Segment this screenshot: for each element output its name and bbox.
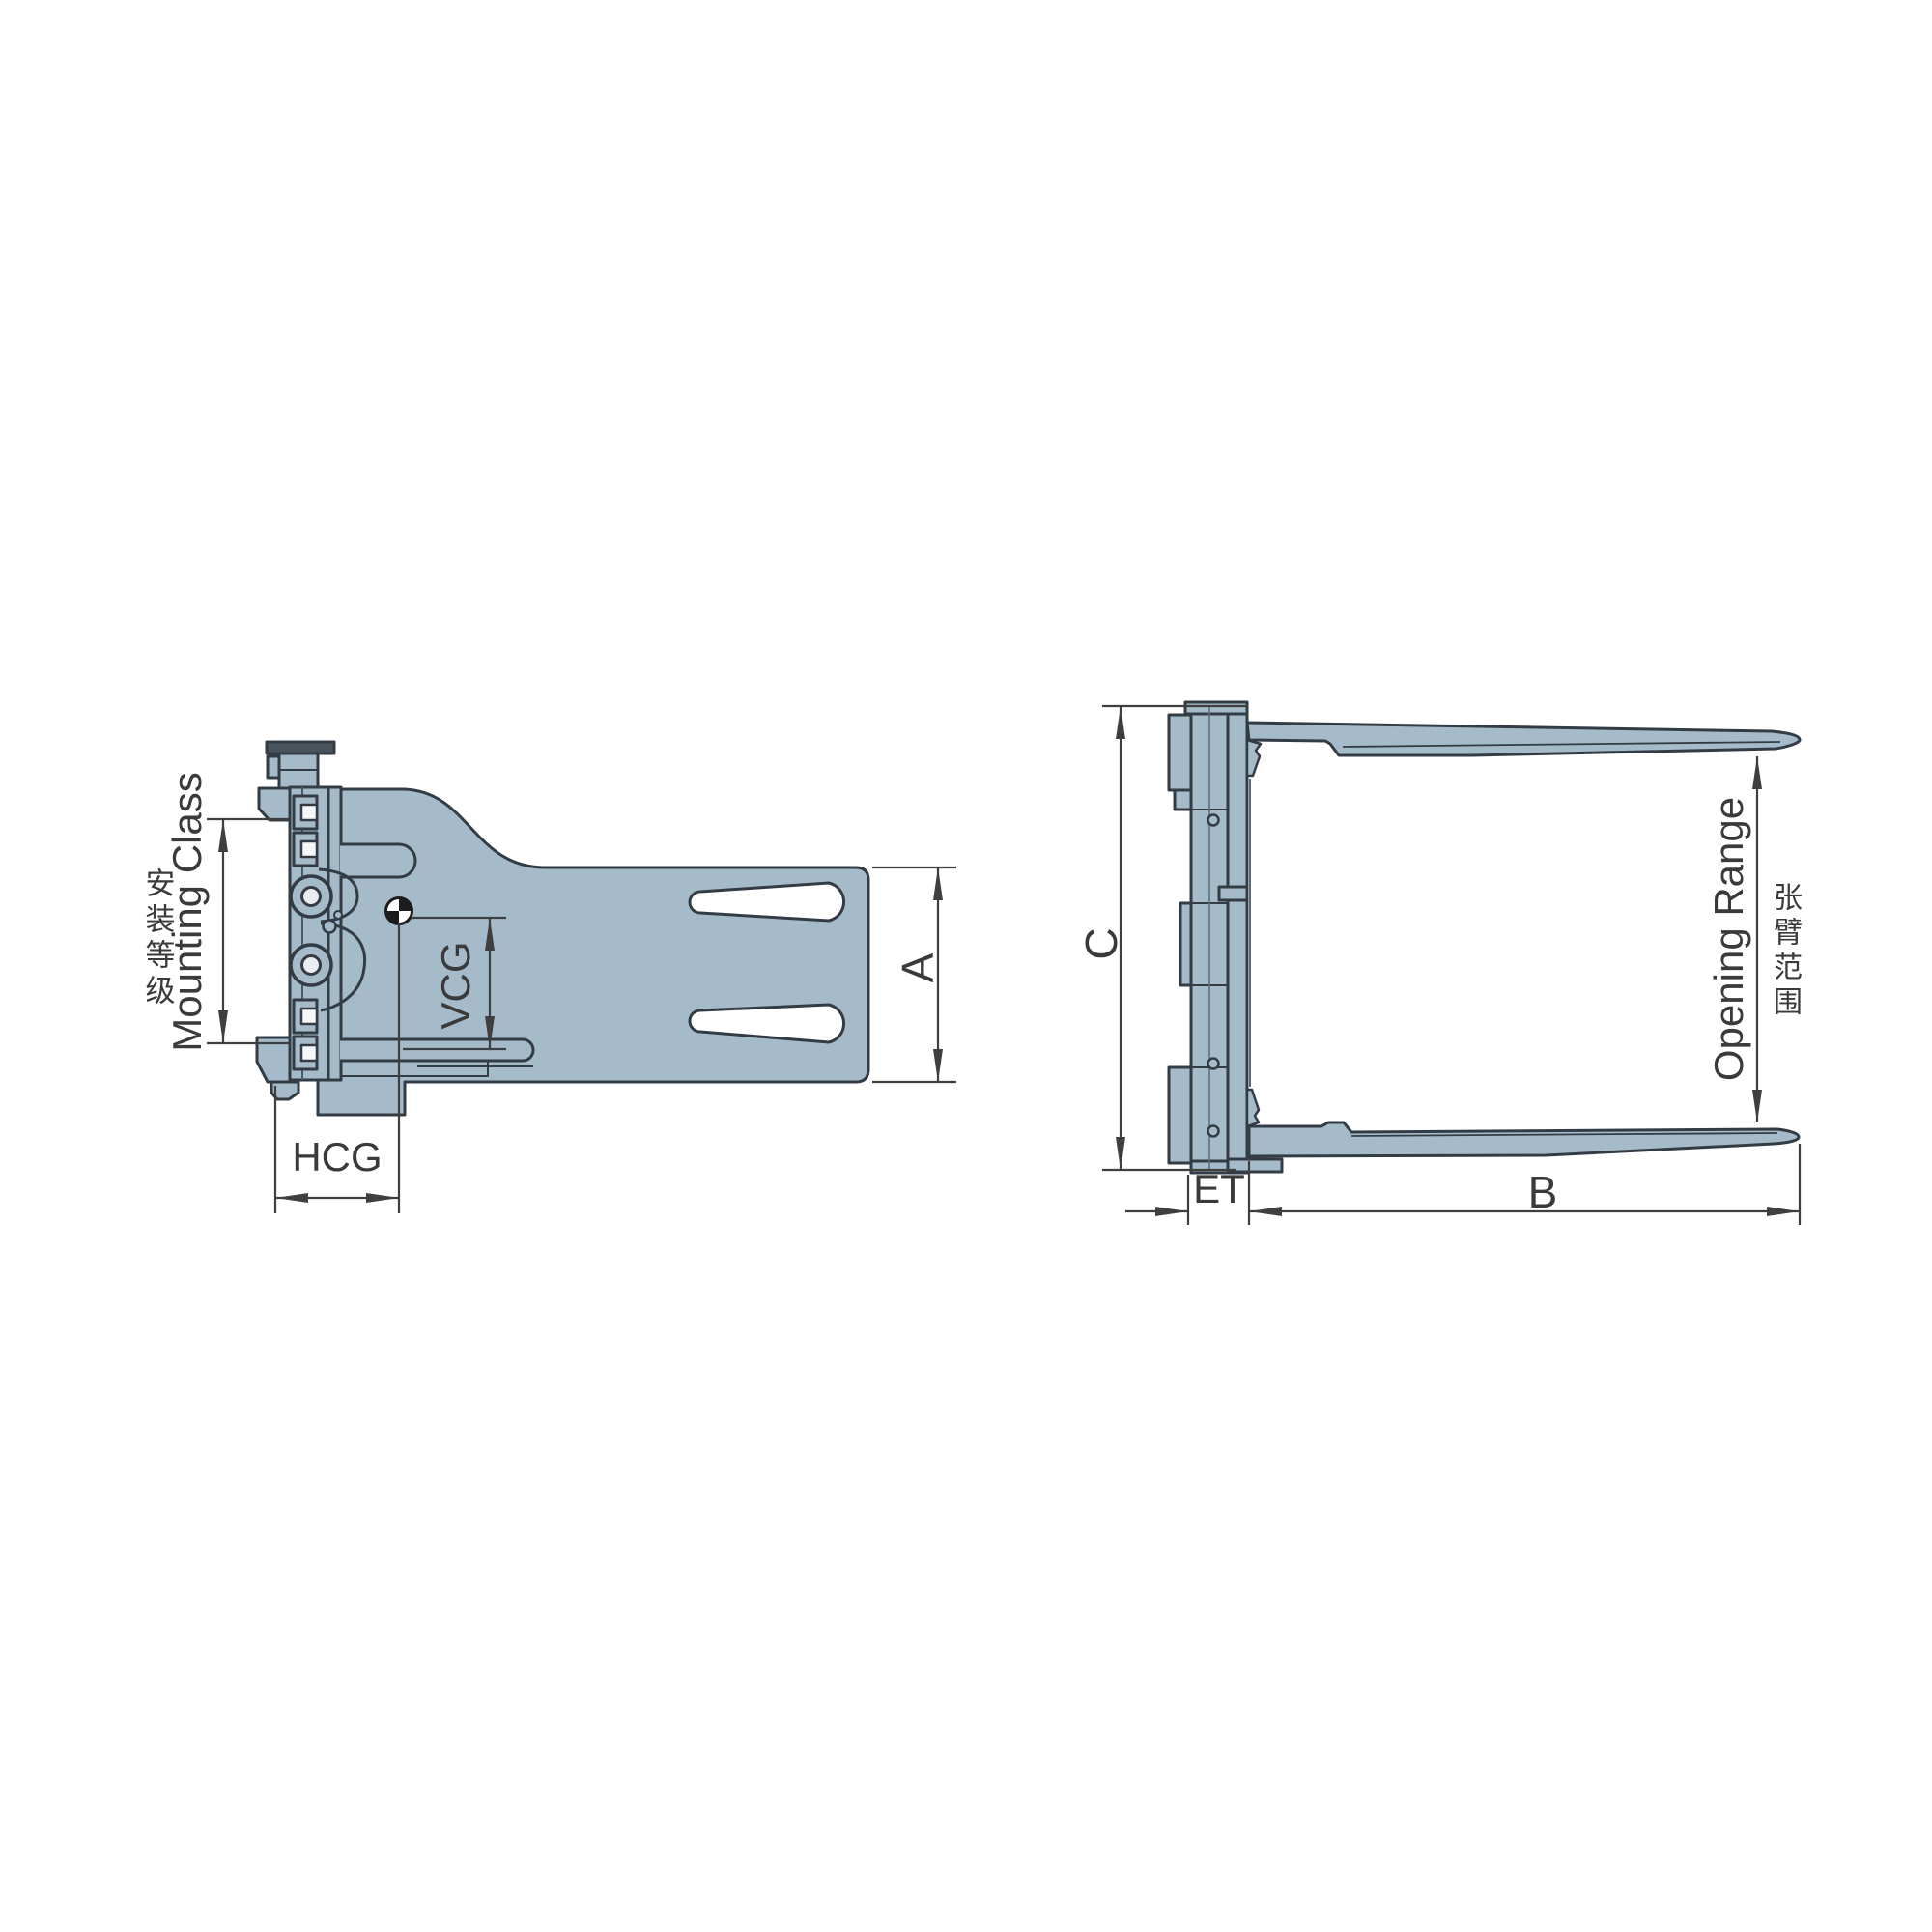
opening-range-cn-label: 张臂范围: [1770, 882, 1799, 1021]
front-strip: [1228, 712, 1247, 1173]
side-view: [257, 742, 868, 1115]
hanger-cap: [267, 742, 334, 753]
top-arm-gusset: [1247, 740, 1261, 776]
technical-drawing-page: 安装等级 Mounting Class VCG HCG A C Opening …: [0, 0, 1932, 1932]
a-label: A: [895, 953, 940, 983]
clamp-drawing-svg: [0, 0, 1932, 1932]
bracket-tab-round: [340, 844, 415, 877]
front-strip-step: [1219, 887, 1247, 900]
front-block-lower: [1169, 1067, 1191, 1163]
mounting-class-label: Mounting Class: [167, 772, 208, 1051]
center-of-gravity-icon: [386, 898, 412, 924]
vcg-label: VCG: [436, 941, 476, 1029]
bottom-arm: [1249, 1122, 1799, 1156]
et-label: ET: [1193, 1169, 1245, 1209]
front-block-upper-notch: [1175, 790, 1191, 810]
bottom-arm-gusset: [1247, 1090, 1259, 1126]
rail-tab-top: [259, 788, 290, 820]
b-label: B: [1528, 1170, 1558, 1214]
hcg-label: HCG: [292, 1137, 382, 1178]
front-block-upper: [1169, 715, 1191, 790]
side-arm-plate: [318, 789, 868, 1115]
hanger-step: [268, 756, 279, 778]
front-bulge-mid: [1180, 903, 1191, 985]
front-cap: [1185, 702, 1247, 714]
c-label: C: [1079, 927, 1123, 959]
top-arm: [1247, 723, 1800, 755]
opening-range-label: Opening Range: [1709, 797, 1749, 1081]
